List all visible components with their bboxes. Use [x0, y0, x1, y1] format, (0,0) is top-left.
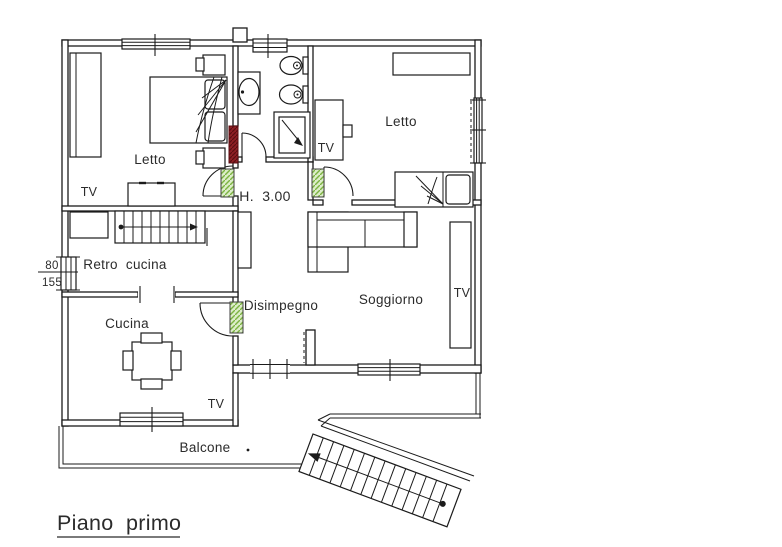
label-ceiling-height: H. 3.00 [239, 188, 290, 204]
sofa [308, 212, 417, 272]
door-cucina [200, 303, 233, 336]
window-top-letto1 [122, 34, 190, 56]
label-letto1: Letto [134, 152, 166, 167]
wardrobe-letto2 [393, 53, 470, 75]
label-soggiorno: Soggiorno [359, 292, 423, 307]
nightstand-bottom [196, 148, 225, 168]
dresser-letto1 [128, 183, 175, 206]
wardrobe-letto1 [70, 53, 101, 157]
double-bed [150, 77, 227, 143]
cucina-furniture [123, 333, 181, 389]
tv-cabinet [450, 222, 471, 348]
letto2-furniture [315, 53, 473, 207]
wall-retro-cucina [62, 292, 138, 297]
door-letto2 [324, 167, 353, 196]
column-letto2 [312, 169, 324, 197]
room-labels: Letto TV Letto TV H. 3.00 Retro cucina C… [81, 114, 471, 455]
wall-left [62, 40, 68, 426]
shower [274, 112, 310, 158]
label-letto2: Letto [385, 114, 417, 129]
label-tv-cucina: TV [208, 397, 225, 411]
floor-plan-drawing: 80 155 Letto TV Letto TV H. 3.00 Retro c… [0, 0, 782, 547]
window-width-value: 80 [45, 260, 58, 272]
nightstand-top [196, 55, 225, 75]
toilet [280, 85, 309, 104]
wall-right [475, 40, 481, 373]
single-bed [395, 172, 473, 207]
window-top-bath [253, 34, 287, 58]
label-tv-letto1: TV [81, 185, 98, 199]
window-bottom-soggiorno [358, 359, 420, 381]
label-tv-soggiorno: TV [454, 286, 471, 300]
label-tv-letto2: TV [318, 141, 335, 155]
door-bagno [242, 133, 266, 157]
french-door-disimpegno [250, 359, 290, 379]
chimney [233, 28, 247, 42]
column-letto1 [221, 169, 234, 197]
balcony-railing [59, 373, 481, 481]
label-cucina: Cucina [105, 316, 149, 331]
wall-letto1-bottom [62, 206, 238, 211]
bathroom-fixtures [238, 57, 310, 159]
window-bottom-cucina [120, 407, 183, 432]
dining-table [123, 333, 181, 389]
soggiorno-furniture [308, 212, 471, 348]
plan-title: Piano primo [57, 511, 181, 537]
counter-retro-cucina [70, 212, 108, 238]
window-right-letto2 [470, 98, 486, 163]
sink [238, 72, 260, 114]
bidet [280, 57, 308, 75]
letto1-furniture [70, 53, 227, 206]
wall-stub-soggiorno [306, 330, 315, 365]
label-disimpegno: Disimpegno [244, 298, 318, 313]
disimpegno-fixtures [238, 212, 251, 268]
window-height-value: 155 [42, 277, 62, 289]
opening-retro-cucina [138, 286, 175, 303]
wall-step [233, 373, 238, 426]
label-retro-cucina: Retro cucina [83, 257, 167, 272]
balcony-marker-dot [247, 449, 250, 452]
column-cucina [230, 302, 243, 333]
retro-cucina-fixtures [70, 211, 207, 246]
wall-corridor-left [233, 211, 238, 303]
label-balcone: Balcone [180, 440, 231, 455]
new-wall-marker [229, 126, 238, 163]
closet-disimpegno [238, 212, 251, 268]
plan-title-text: Piano primo [57, 511, 181, 535]
floor-plan-canvas: 80 155 Letto TV Letto TV H. 3.00 Retro c… [0, 0, 782, 547]
internal-staircase [115, 211, 207, 246]
